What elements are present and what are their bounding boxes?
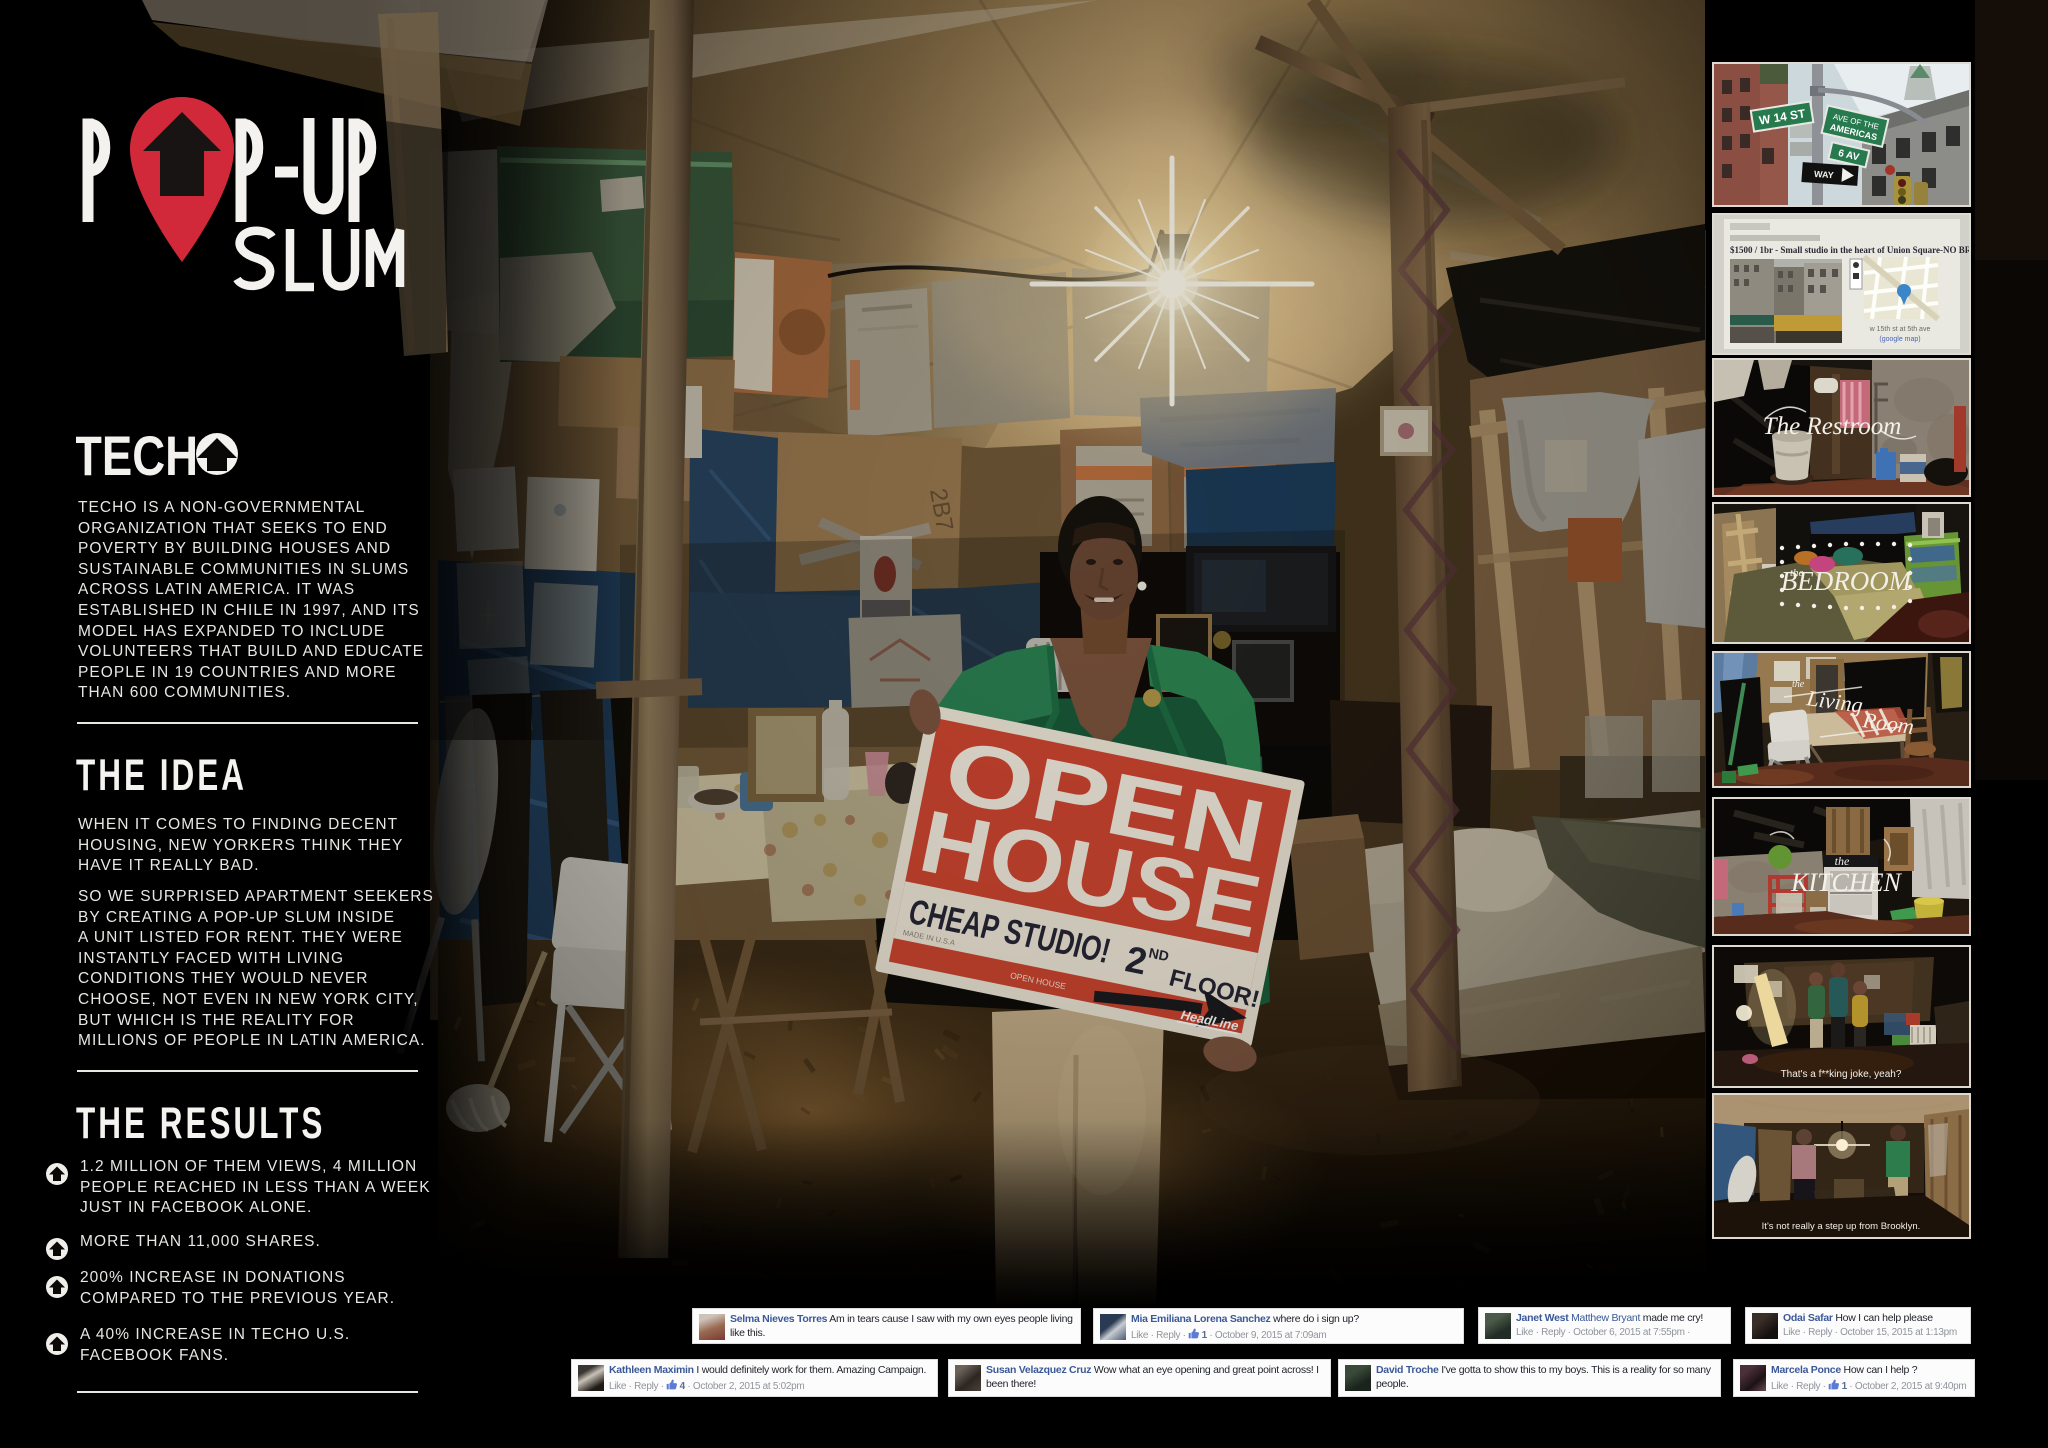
svg-text:the: the [1792, 679, 1805, 690]
svg-text:(google map): (google map) [1879, 336, 1920, 343]
svg-text:The Restroom: The Restroom [1763, 413, 1902, 440]
svg-text:TECH: TECH [76, 430, 198, 480]
svg-text:$1500 / 1br - Small studio in: $1500 / 1br - Small studio in the heart … [1730, 245, 1969, 255]
svg-text:the: the [1835, 854, 1850, 868]
svg-text:the: the [1790, 567, 1804, 579]
svg-text:WAY: WAY [1814, 169, 1834, 180]
svg-text:KITCHEN: KITCHEN [1790, 868, 1902, 897]
svg-text:That's a f**king joke, yeah?: That's a f**king joke, yeah? [1781, 1069, 1902, 1080]
svg-text:w 15th st at 5th ave: w 15th st at 5th ave [1869, 326, 1931, 333]
svg-text:It's not really a step up from: It's not really a step up from Brooklyn. [1762, 1221, 1921, 1232]
